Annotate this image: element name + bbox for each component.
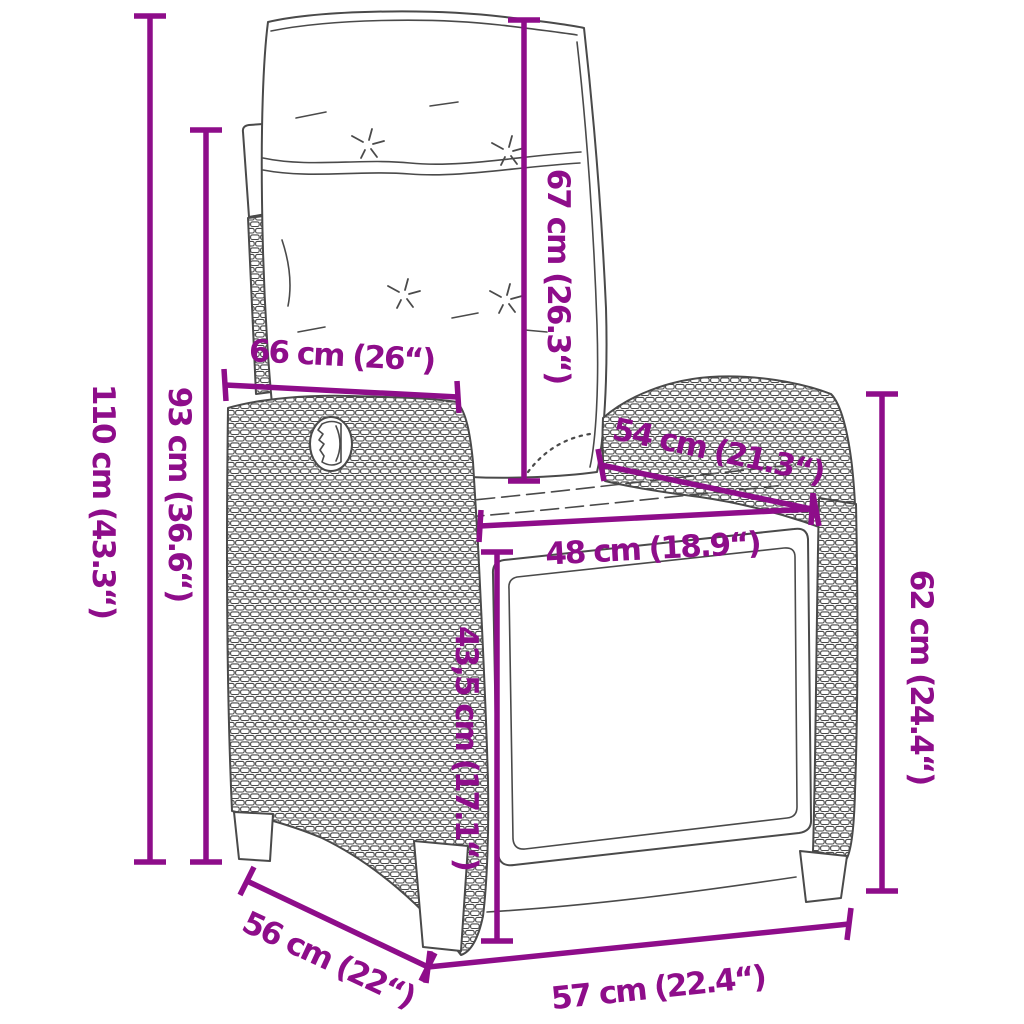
dimension-label-overall-height: 110 cm (43.3“) (85, 384, 121, 618)
right-leg (800, 851, 847, 902)
seat-front-panel (493, 529, 811, 866)
chair-illustration (227, 11, 857, 955)
diagram-canvas: 110 cm (43.3“) 93 cm (36.6“) 66 cm (26“)… (0, 0, 1024, 1024)
bottom-rail (487, 877, 796, 912)
left-leg (234, 812, 273, 861)
product-dimension-diagram: 110 cm (43.3“) 93 cm (36.6“) 66 cm (26“)… (0, 0, 1024, 1024)
dimension-line-armrest-height (866, 394, 898, 891)
dimension-label-overall-width: 57 cm (22.4“) (549, 959, 766, 1017)
dimension-label-seat-front-height: 43,5 cm (17.1“) (448, 626, 484, 870)
dimension-label-backrest-height: 93 cm (36.6“) (161, 387, 197, 602)
right-side-panel (813, 498, 857, 858)
dimension-label-armrest-height: 62 cm (24.4“) (903, 570, 939, 785)
dimension-label-back-cushion-height: 67 cm (26.3“) (540, 169, 576, 384)
